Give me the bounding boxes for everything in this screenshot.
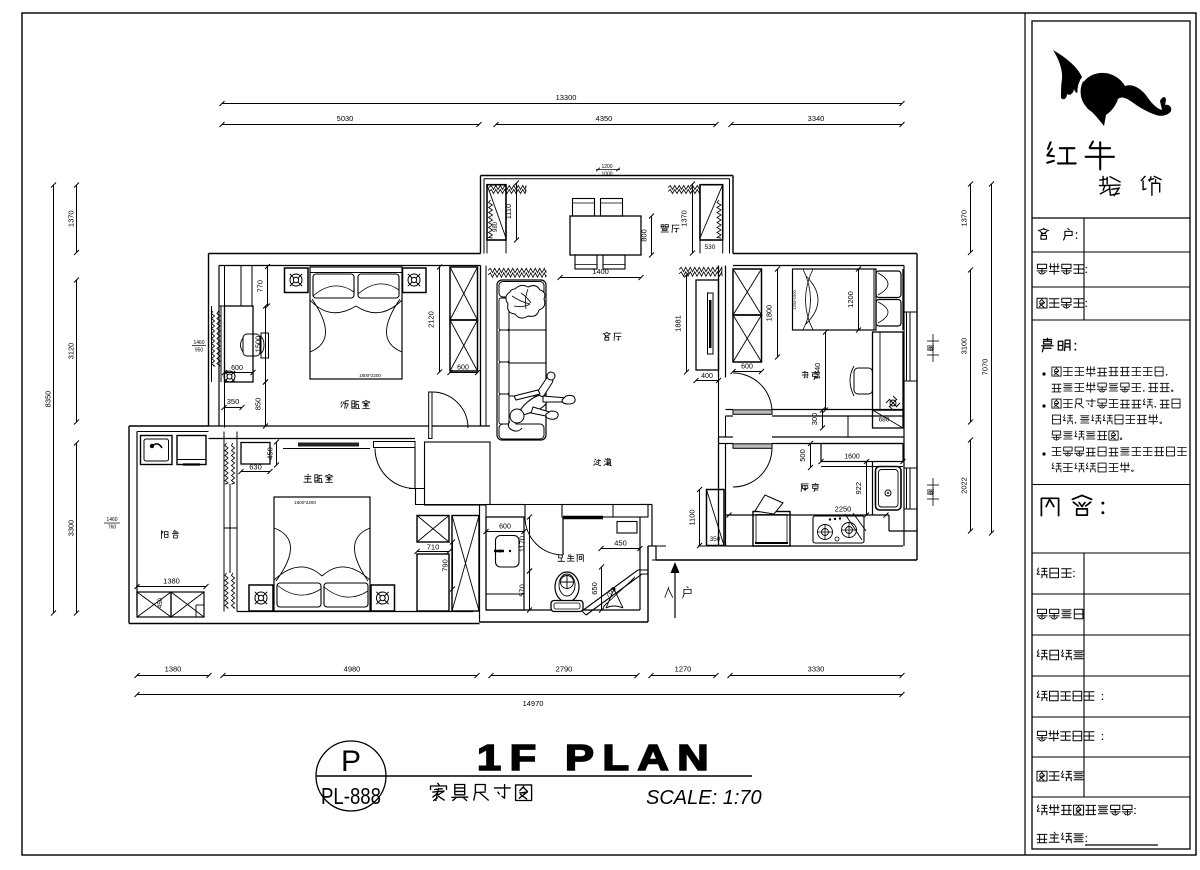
svg-text:450: 450	[614, 539, 627, 548]
svg-text:1460: 1460	[193, 340, 204, 346]
svg-text:350: 350	[710, 536, 721, 543]
svg-text:暖: 暖	[927, 489, 935, 496]
svg-text:1F PLAN: 1F PLAN	[477, 737, 717, 778]
svg-text:1200: 1200	[601, 164, 612, 170]
svg-text:3300: 3300	[67, 520, 76, 537]
svg-text:1400: 1400	[592, 267, 609, 276]
svg-text:1200: 1200	[846, 291, 855, 308]
svg-text:790: 790	[441, 559, 450, 572]
svg-text:1600: 1600	[844, 454, 860, 461]
svg-text:1460: 1460	[106, 517, 117, 523]
svg-text:600: 600	[231, 365, 243, 372]
svg-text:7070: 7070	[981, 359, 990, 376]
svg-text:980: 980	[493, 221, 499, 232]
svg-text:707: 707	[604, 586, 617, 599]
svg-text:3120: 3120	[67, 343, 76, 360]
svg-text:暖: 暖	[927, 345, 935, 352]
svg-text:1100: 1100	[688, 509, 697, 525]
svg-text:1370: 1370	[960, 210, 969, 227]
svg-text:1800*2200: 1800*2200	[359, 373, 381, 378]
svg-text:500: 500	[798, 449, 807, 462]
svg-text:4350: 4350	[596, 114, 613, 123]
svg-text:P: P	[341, 745, 361, 778]
svg-text:650: 650	[590, 582, 599, 595]
svg-text:5030: 5030	[337, 114, 354, 123]
svg-text:450: 450	[158, 597, 164, 608]
svg-text:1380: 1380	[163, 577, 180, 586]
svg-text:600: 600	[499, 524, 511, 531]
svg-text:450: 450	[266, 447, 275, 460]
svg-text:8350: 8350	[44, 391, 53, 408]
svg-text:570: 570	[518, 584, 527, 597]
svg-text:680: 680	[879, 417, 890, 424]
svg-text:1270: 1270	[675, 665, 692, 674]
svg-text:950: 950	[195, 348, 204, 354]
svg-text:1380: 1380	[165, 665, 182, 674]
svg-text:1200*1900: 1200*1900	[792, 290, 797, 310]
svg-text:1500: 1500	[254, 336, 263, 353]
svg-text:1370: 1370	[680, 210, 689, 227]
svg-text:300: 300	[810, 413, 819, 426]
svg-text:1000: 1000	[601, 172, 612, 178]
svg-text:1370: 1370	[67, 210, 76, 227]
svg-text:4980: 4980	[344, 665, 361, 674]
svg-text:400: 400	[701, 373, 713, 380]
svg-text:800: 800	[640, 229, 649, 242]
svg-text:1110: 1110	[504, 204, 513, 220]
svg-text:1800*2200: 1800*2200	[294, 500, 316, 505]
svg-text:760: 760	[108, 525, 117, 531]
svg-text:13300: 13300	[556, 93, 577, 102]
svg-text:1881: 1881	[674, 315, 683, 332]
svg-text:630: 630	[249, 463, 262, 472]
svg-text:1170: 1170	[518, 536, 527, 552]
svg-text:922: 922	[854, 482, 863, 495]
svg-text:600: 600	[741, 364, 753, 371]
svg-text:3100: 3100	[960, 338, 969, 355]
svg-text:1800: 1800	[765, 305, 774, 322]
svg-text:850: 850	[254, 398, 263, 411]
svg-text:PL-888: PL-888	[321, 783, 381, 809]
svg-text:3330: 3330	[808, 665, 825, 674]
svg-text:2790: 2790	[556, 665, 573, 674]
svg-text:710: 710	[427, 543, 440, 552]
svg-text:600: 600	[457, 365, 469, 372]
svg-text:1640: 1640	[813, 363, 822, 380]
svg-text:530: 530	[705, 244, 716, 251]
svg-text:14970: 14970	[523, 699, 544, 708]
svg-text:2250: 2250	[835, 505, 852, 514]
svg-text:350: 350	[227, 397, 240, 406]
svg-text:SCALE: 1:70: SCALE: 1:70	[646, 787, 762, 809]
svg-text:2120: 2120	[427, 311, 436, 328]
svg-text:770: 770	[256, 280, 265, 293]
svg-text:2022: 2022	[960, 477, 969, 494]
svg-text:3340: 3340	[808, 114, 825, 123]
